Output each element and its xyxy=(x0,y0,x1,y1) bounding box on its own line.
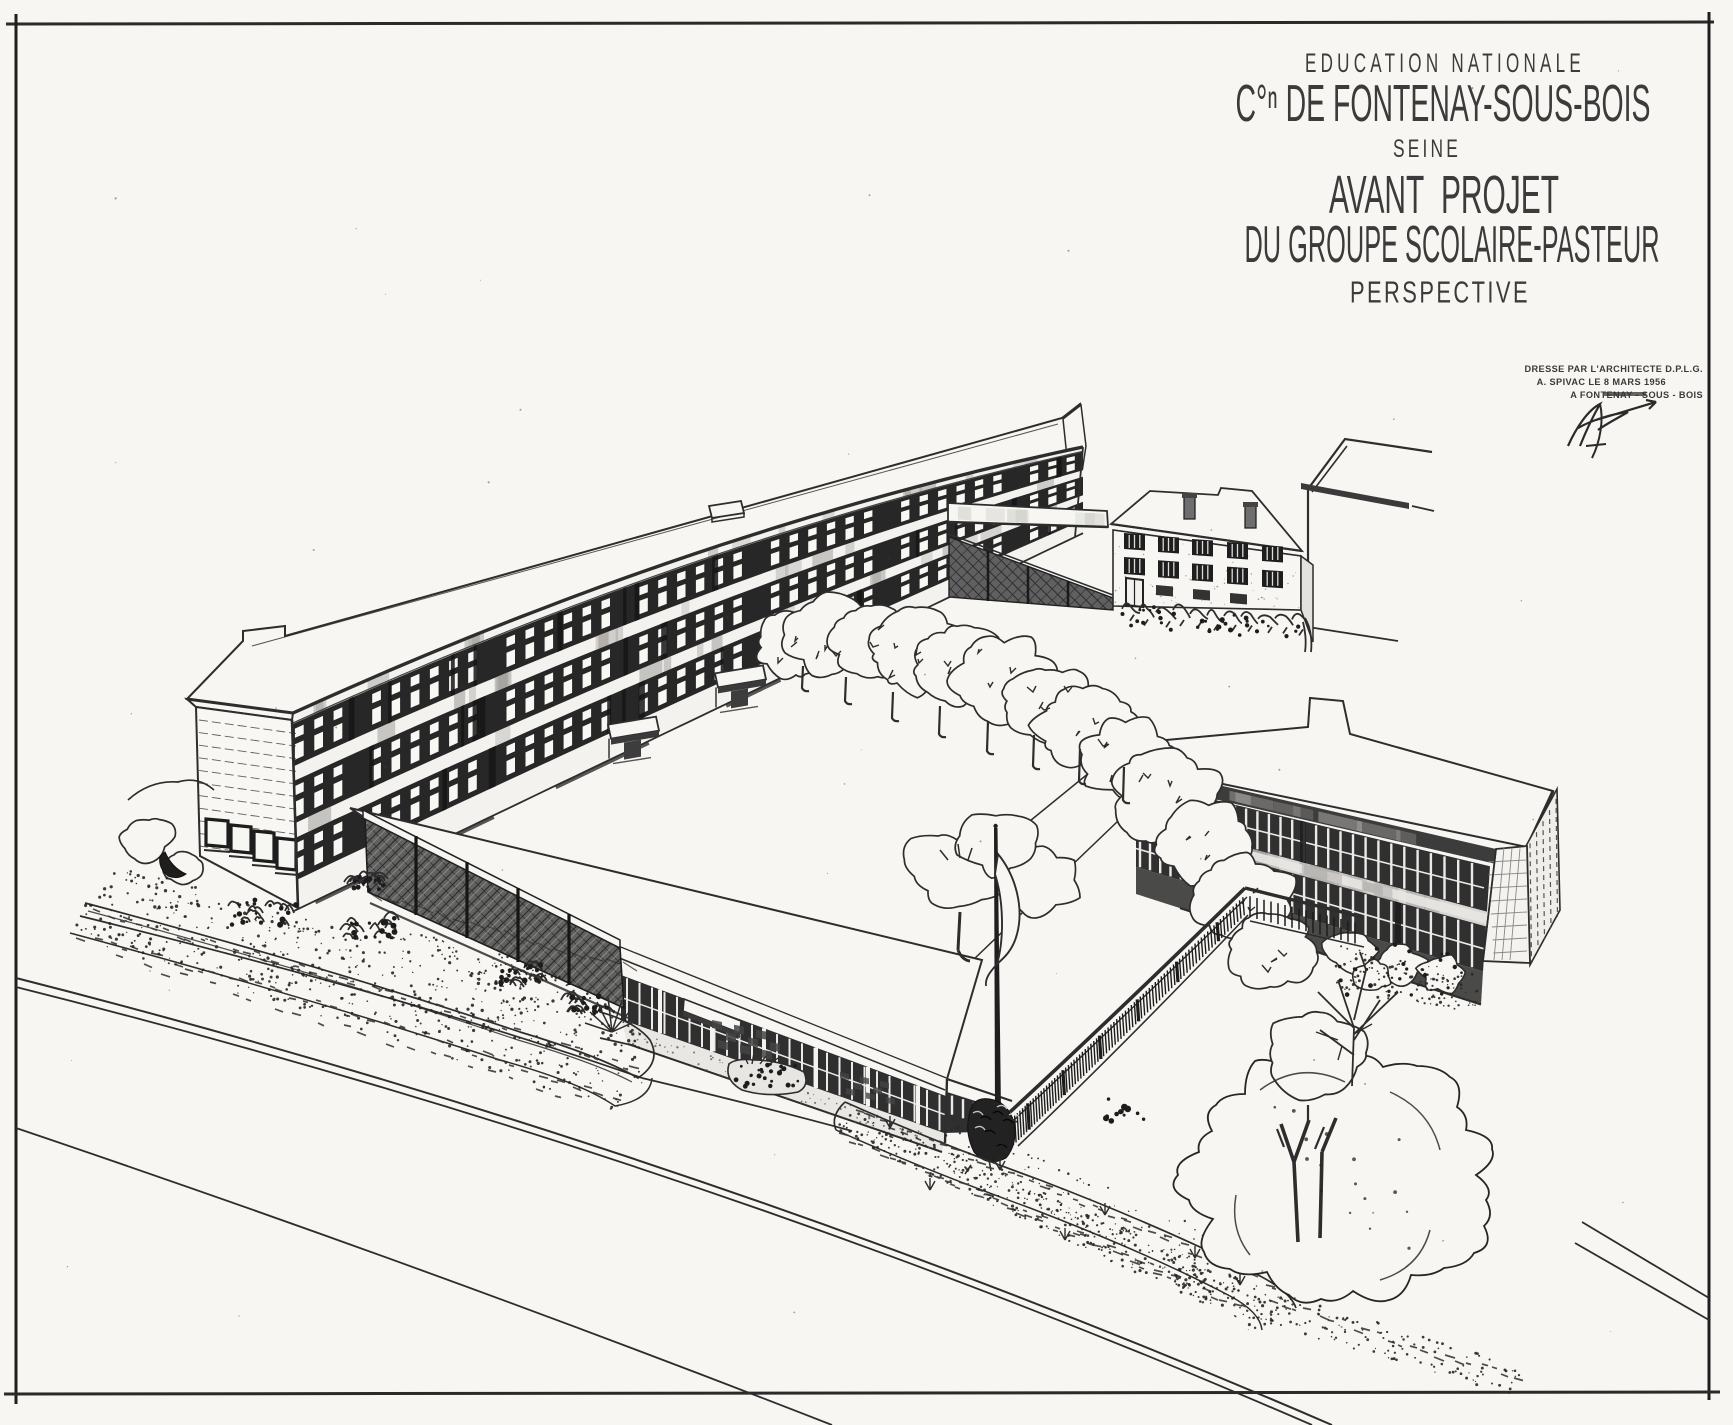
svg-text:A. SPIVAC LE 8 MARS 1956: A. SPIVAC LE 8 MARS 1956 xyxy=(1537,377,1666,387)
svg-text:DU GROUPE SCOLAIRE-PASTEUR: DU GROUPE SCOLAIRE-PASTEUR xyxy=(1245,217,1660,274)
svg-text:PERSPECTIVE: PERSPECTIVE xyxy=(1350,276,1530,310)
svg-text:DRESSE PAR L'ARCHITECTE D.P.L.: DRESSE PAR L'ARCHITECTE D.P.L.G. xyxy=(1524,364,1703,374)
svg-text:AVANT PROJET: AVANT PROJET xyxy=(1329,164,1559,224)
svg-text:C°ⁿ DE FONTENAY-SOUS-BOIS: C°ⁿ DE FONTENAY-SOUS-BOIS xyxy=(1236,76,1651,133)
svg-text:EDUCATION NATIONALE: EDUCATION NATIONALE xyxy=(1305,49,1585,79)
svg-text:SEINE: SEINE xyxy=(1393,135,1461,162)
